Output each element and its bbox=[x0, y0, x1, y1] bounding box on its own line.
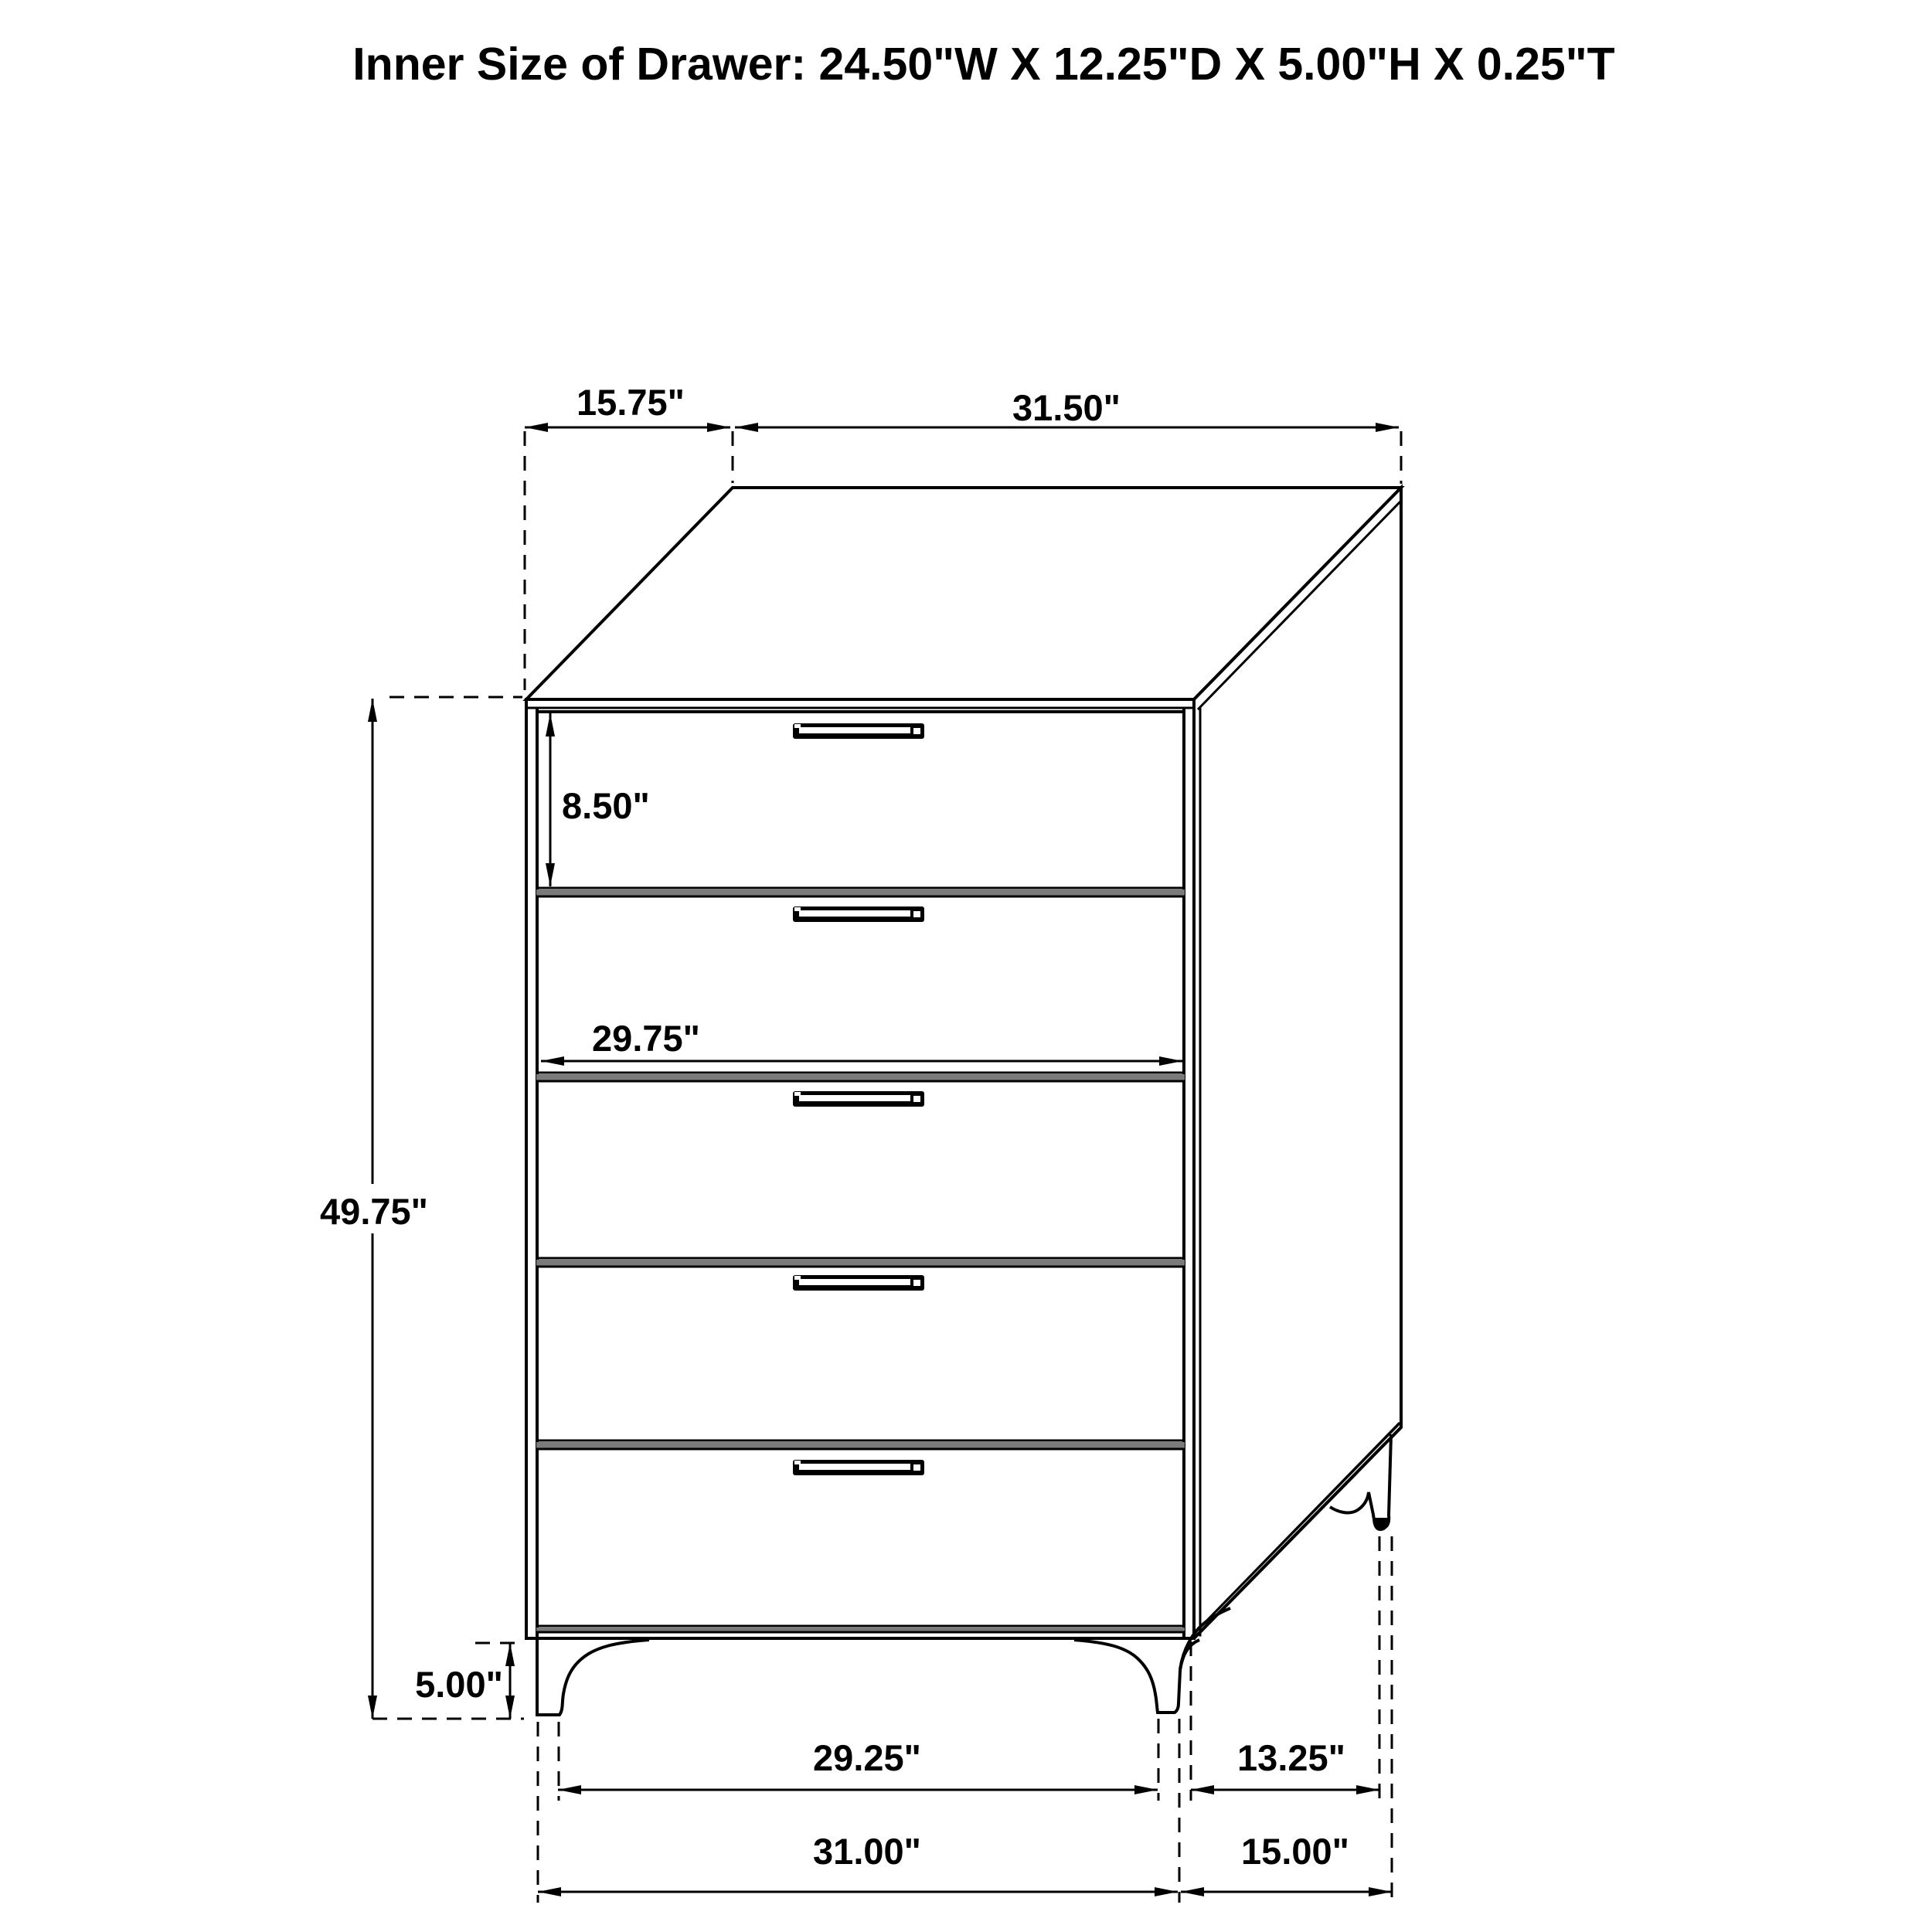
svg-text:13.25": 13.25" bbox=[1237, 1737, 1345, 1778]
svg-text:31.50": 31.50" bbox=[1012, 387, 1121, 428]
svg-text:15.00": 15.00" bbox=[1241, 1831, 1349, 1872]
svg-text:31.00": 31.00" bbox=[813, 1831, 921, 1872]
svg-text:49.75": 49.75" bbox=[320, 1191, 428, 1232]
svg-text:8.50": 8.50" bbox=[562, 785, 650, 826]
svg-text:29.75": 29.75" bbox=[592, 1018, 700, 1059]
svg-text:Inner Size of Drawer: 24.50"W: Inner Size of Drawer: 24.50"W X 12.25"D … bbox=[352, 39, 1614, 90]
svg-text:15.75": 15.75" bbox=[577, 382, 685, 423]
svg-text:29.25": 29.25" bbox=[813, 1737, 921, 1778]
svg-text:5.00": 5.00" bbox=[415, 1664, 503, 1705]
